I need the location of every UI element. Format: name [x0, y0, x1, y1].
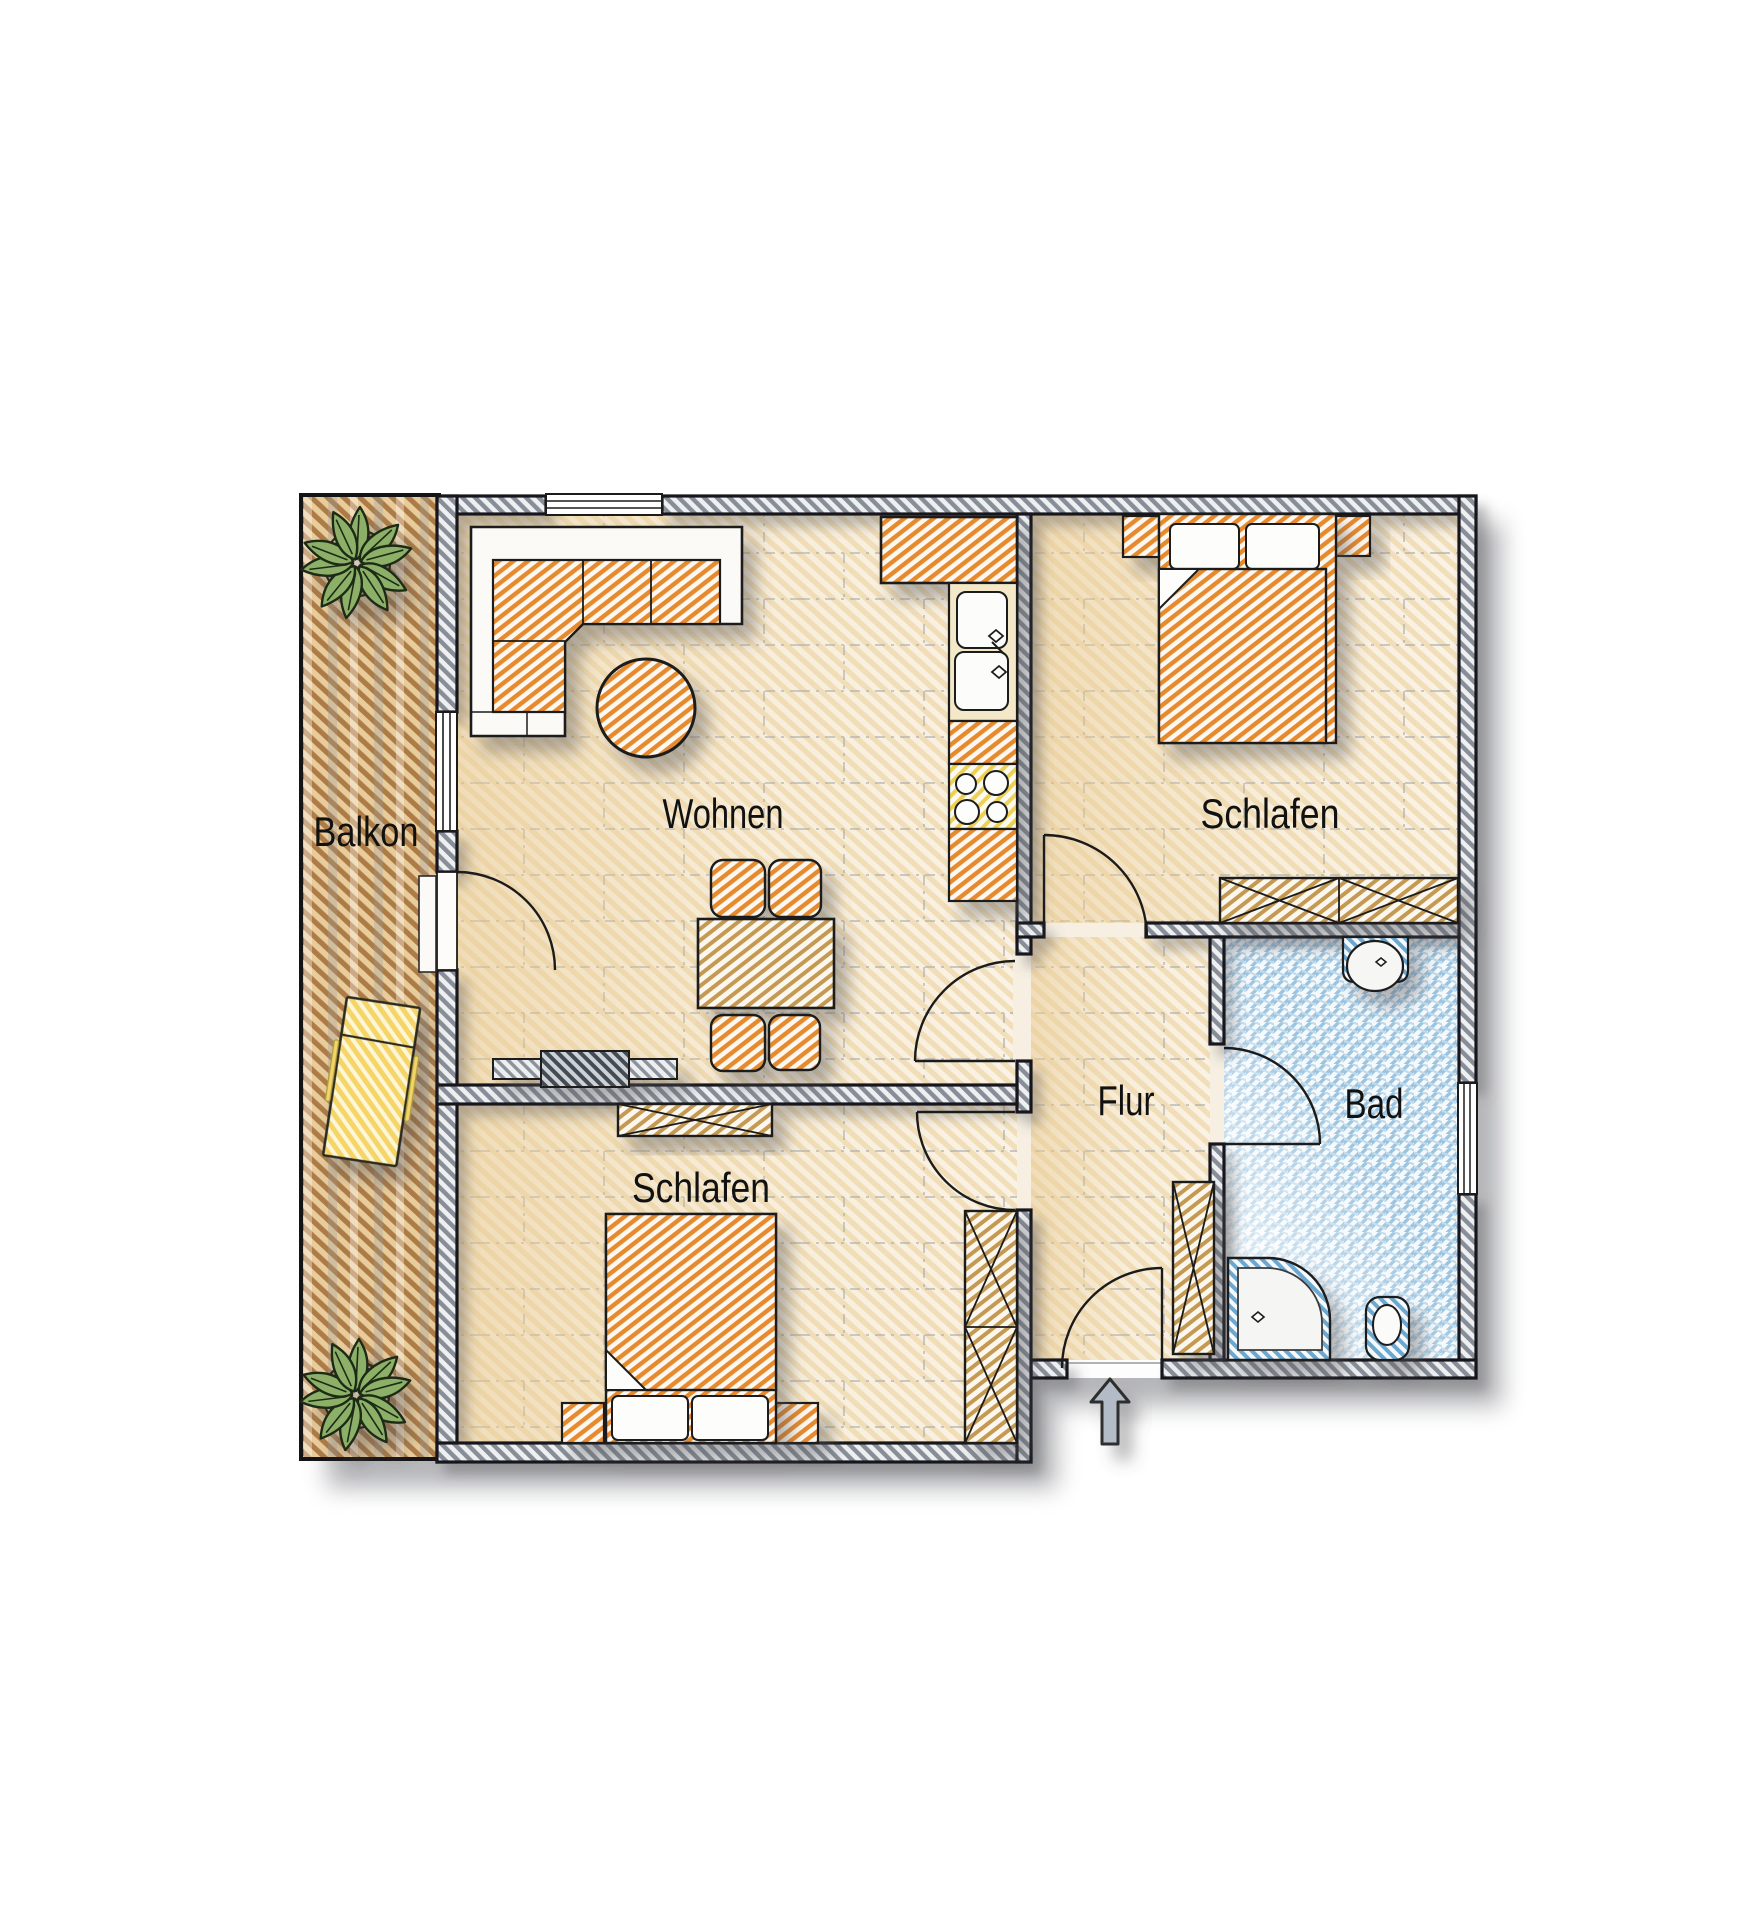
svg-text:Schlafen: Schlafen	[1201, 790, 1340, 837]
svg-text:Schlafen: Schlafen	[632, 1164, 770, 1211]
svg-text:Wohnen: Wohnen	[663, 790, 784, 837]
svg-text:Flur: Flur	[1098, 1077, 1155, 1124]
svg-text:Bad: Bad	[1345, 1080, 1404, 1127]
svg-text:Balkon: Balkon	[314, 808, 419, 855]
